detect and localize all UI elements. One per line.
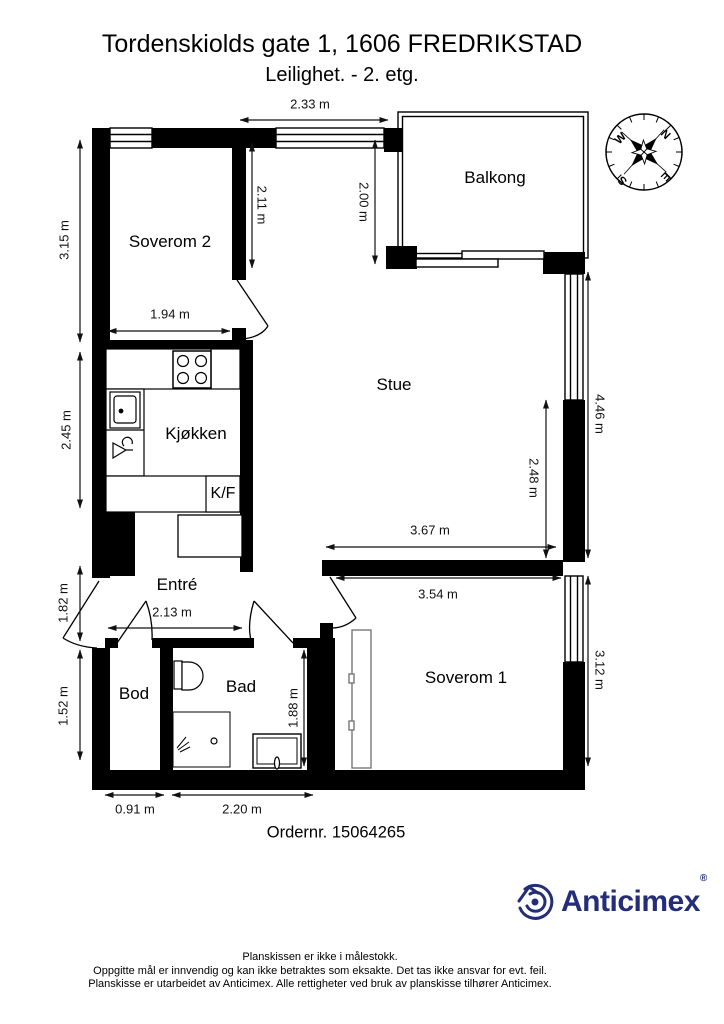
dim-bod-width: 0.91 m (115, 802, 155, 817)
window-stue-top (276, 128, 384, 148)
disclaimer-line-2: Oppgitte mål er innvendig og kan ikke be… (0, 965, 640, 979)
compass-e: E (658, 169, 672, 183)
room-label-soverom2: Soverom 2 (129, 232, 211, 252)
room-label-bod: Bod (119, 684, 149, 704)
dim-entre-left: 1.82 m (56, 583, 71, 623)
dim-soverom2-left: 3.15 m (57, 220, 72, 260)
room-label-balkong: Balkong (464, 168, 525, 188)
dim-soverom2-width: 1.94 m (150, 307, 190, 322)
shower-icon (173, 712, 230, 767)
dim-stue-inner: 2.48 m (527, 458, 542, 498)
dim-bad-width: 2.20 m (222, 802, 262, 817)
walls (92, 128, 585, 790)
compass-s: S (616, 173, 630, 187)
room-label-entre: Entré (157, 575, 198, 595)
dim-balkong-depth: 2.00 m (357, 182, 372, 222)
dim-bod-left: 1.52 m (56, 686, 71, 726)
dim-stue-width: 3.67 m (410, 523, 450, 538)
disclaimer-line-1: Planskissen er ikke i målestokk. (0, 951, 640, 965)
dim-top-stue: 2.33 m (290, 97, 330, 112)
room-label-stue: Stue (377, 375, 412, 395)
floor-plan-drawing: N E S W (0, 0, 724, 1024)
dim-bad-inner: 1.88 m (286, 688, 301, 728)
anticimex-logo-icon (514, 880, 556, 924)
anticimex-logo-text: Anticimex (561, 885, 700, 918)
room-label-kf: K/F (211, 485, 236, 503)
dim-soverom2-inner: 2.11 m (255, 186, 270, 225)
stove-icon (173, 351, 211, 388)
room-label-kjokken: Kjøkken (165, 424, 226, 444)
compass-n: N (658, 128, 672, 142)
compass-w: W (613, 131, 629, 147)
floor-plan-page: N E S W Tordenskiolds gate 1, 1606 FREDR… (0, 0, 724, 1024)
dim-stue-right: 4.46 m (593, 394, 608, 434)
dim-entre-width: 2.13 m (152, 605, 192, 620)
registered-trademark-symbol: ® (700, 873, 707, 884)
room-label-bad: Bad (226, 677, 256, 697)
anticimex-logo: Anticimex® (514, 880, 707, 924)
page-title: Tordenskiolds gate 1, 1606 FREDRIKSTAD (0, 30, 684, 59)
bathroom-sink-icon (253, 734, 301, 769)
window-soverom1-right (565, 576, 583, 662)
wardrobe-soverom1 (349, 630, 371, 768)
disclaimer-line-3: Planskisse er utarbeidet av Anticimex. A… (0, 978, 640, 992)
window-soverom2 (110, 128, 152, 148)
page-subtitle: Leilighet. - 2. etg. (0, 64, 684, 87)
order-number: Ordernr. 15064265 (267, 824, 406, 843)
dim-soverom1-width: 3.54 m (418, 587, 458, 602)
door-bad (250, 601, 293, 643)
entre-closet (178, 515, 242, 557)
kitchen-sink-icon (110, 392, 140, 428)
compass-icon: N E S W (602, 110, 687, 195)
door-bod (117, 601, 152, 643)
room-label-soverom1: Soverom 1 (425, 668, 507, 688)
toilet-icon (174, 661, 203, 690)
window-stue-right (565, 274, 583, 400)
dim-soverom1-right: 3.12 m (593, 650, 608, 690)
disclaimer-footer: Planskissen er ikke i målestokk. Oppgitt… (0, 951, 640, 992)
dim-kjokken-left: 2.45 m (59, 410, 74, 450)
door-soverom1 (330, 577, 356, 628)
